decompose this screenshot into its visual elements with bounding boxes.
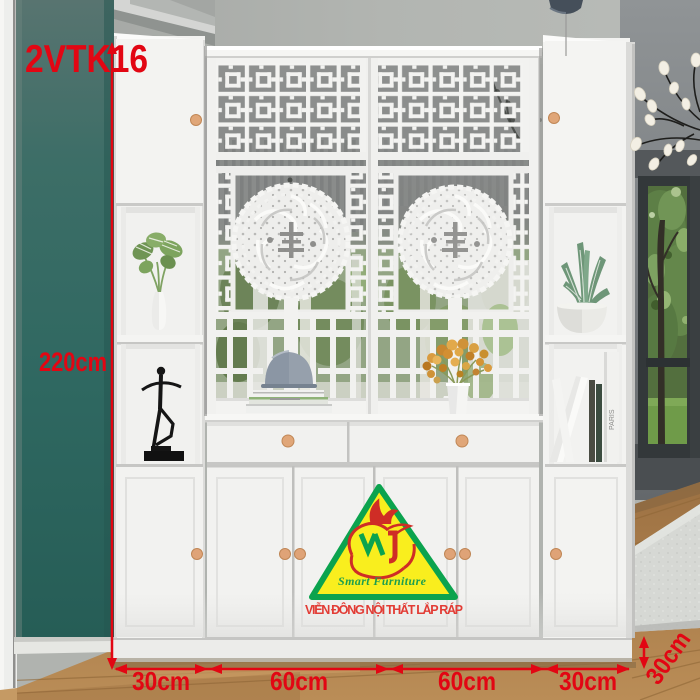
svg-text:2VTK16: 2VTK16 [25, 38, 148, 81]
svg-text:220cm: 220cm [39, 347, 107, 377]
svg-text:PARIS: PARIS [609, 409, 616, 430]
svg-text:60cm: 60cm [270, 666, 328, 696]
svg-text:VIỄN ĐÔNG NỘI THẤT LẮP RÁP: VIỄN ĐÔNG NỘI THẤT LẮP RÁP [305, 602, 463, 617]
svg-text:30cm: 30cm [559, 666, 617, 696]
svg-text:60cm: 60cm [438, 666, 496, 696]
svg-text:30cm: 30cm [132, 666, 190, 696]
svg-text:Smart Furniture: Smart Furniture [338, 574, 427, 588]
